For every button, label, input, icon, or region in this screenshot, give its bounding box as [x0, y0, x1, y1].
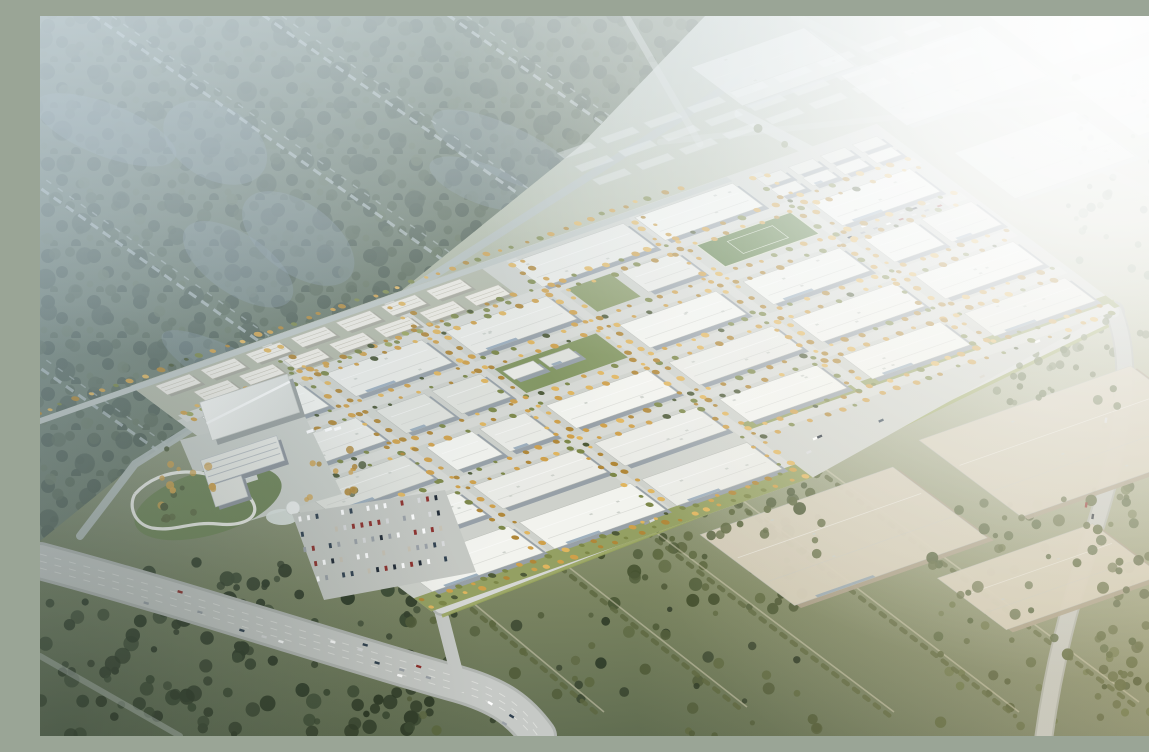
corner-vignette — [40, 16, 1149, 736]
rendered-scene — [40, 16, 1149, 736]
atmosphere-overlays — [40, 16, 1149, 736]
aerial-rendering — [40, 16, 1149, 736]
